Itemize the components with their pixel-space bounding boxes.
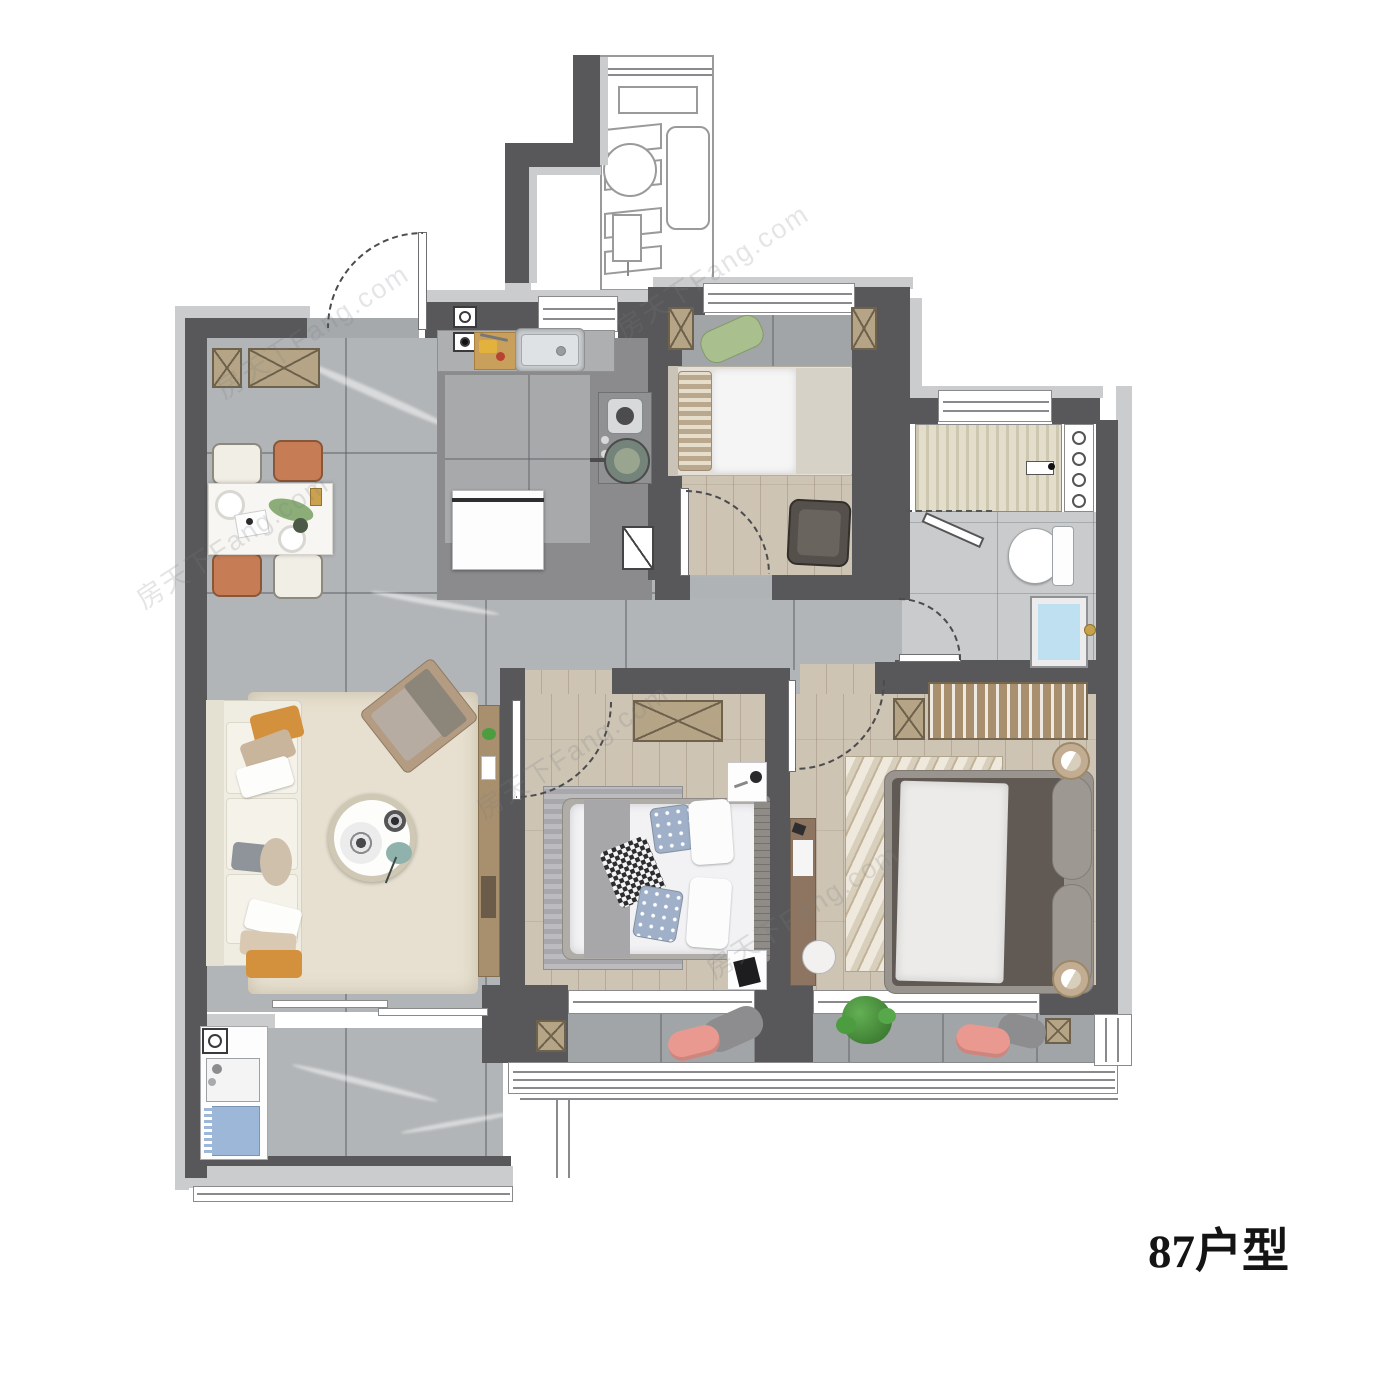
lower-floor-line <box>520 1098 1118 1100</box>
bed1-pillow <box>678 371 712 471</box>
bedroom1-door-threshold <box>690 577 772 598</box>
column <box>851 307 877 350</box>
fridge-handle <box>452 498 544 502</box>
dining-chair <box>273 553 323 599</box>
nightstand-deco <box>750 771 762 783</box>
plant-leaf <box>836 1016 856 1034</box>
decor-plate <box>340 822 382 864</box>
wall-lining <box>600 57 608 165</box>
dining-chair <box>212 443 262 485</box>
window-line <box>573 1001 752 1003</box>
wall-lining <box>1116 386 1132 1028</box>
decor-flower <box>384 810 406 832</box>
shower-door-track <box>906 510 992 512</box>
pipe-circle <box>1072 473 1086 487</box>
bathroom-window <box>938 390 1052 422</box>
nightstand <box>727 762 767 802</box>
unit-type-label: 87户型 <box>1148 1212 1348 1272</box>
window-line <box>513 1071 1115 1073</box>
nightstand-deco <box>1057 747 1084 774</box>
floor-plan-canvas: 房天下Fang.com 房天下Fang.com 房天下Fang.com 房天下F… <box>0 0 1400 1400</box>
tv-console <box>478 705 500 977</box>
symbol-box <box>453 306 477 328</box>
vent-box <box>618 86 698 114</box>
kitchen-door-leaf <box>622 526 654 570</box>
column <box>536 1020 566 1052</box>
window-line <box>513 1079 1115 1081</box>
kitchen-window <box>538 296 618 332</box>
living-sliding-door <box>378 1008 488 1016</box>
arc-curve <box>795 680 885 770</box>
food-item <box>479 340 497 353</box>
desk-chair-round <box>802 940 836 974</box>
faucet <box>1084 624 1096 636</box>
column <box>893 698 925 740</box>
wall-bedroom1-south <box>655 575 690 600</box>
desk-chair-cushion <box>797 509 841 557</box>
bedroom2-door-threshold <box>515 670 612 694</box>
wall-lining <box>529 167 537 283</box>
window-line <box>708 302 852 304</box>
sink-basin <box>521 334 579 366</box>
window-line <box>197 1193 510 1195</box>
console-plant <box>482 728 496 740</box>
window-line <box>943 401 1049 403</box>
window-line <box>708 293 852 295</box>
arc-curve <box>899 598 961 660</box>
wall-segment <box>505 143 529 283</box>
shower-head-dot <box>1048 463 1055 470</box>
nightstand-deco <box>734 781 748 789</box>
burner-center <box>616 407 634 425</box>
door-leaf-line <box>624 528 652 568</box>
decor-leaf <box>386 842 412 864</box>
bedroom2-south-window <box>568 990 755 1014</box>
plant-leaf <box>878 1008 896 1024</box>
living-sliding-door <box>272 1000 388 1008</box>
window-line <box>1117 1018 1119 1062</box>
window-line <box>943 410 1049 412</box>
throw-pillow <box>246 950 302 978</box>
equipment-box <box>612 214 642 262</box>
ac-fan-circle <box>603 143 657 197</box>
window-line <box>543 318 615 320</box>
toilet-tank <box>1052 526 1074 586</box>
bedroom1-door-arc <box>686 490 770 574</box>
wall-bath-west <box>877 400 905 512</box>
symbol-box <box>202 1028 228 1054</box>
master-runner <box>895 781 1008 984</box>
symbol-dot <box>460 337 470 347</box>
column <box>1045 1018 1071 1044</box>
round-nightstand <box>1052 742 1090 780</box>
bed2-pillow-dotted <box>632 885 684 944</box>
pipe-line <box>627 262 629 276</box>
window-line <box>543 308 615 310</box>
master-door-arc <box>795 680 885 770</box>
throw-pillow <box>260 838 292 886</box>
laundry-faucet <box>212 1064 222 1074</box>
corner-window <box>1094 1014 1132 1066</box>
lower-floor-line <box>568 1098 570 1178</box>
bed1-headboard <box>668 366 678 476</box>
sofa-back <box>206 700 224 966</box>
bedroom1-window <box>703 283 855 313</box>
laundry-drain <box>208 1078 216 1086</box>
wall-east <box>1096 420 1118 1018</box>
wall-bath-west <box>880 512 902 598</box>
symbol-circle <box>208 1034 222 1048</box>
platform-line <box>602 68 712 70</box>
round-nightstand <box>1052 960 1090 998</box>
arc-curve <box>686 490 770 574</box>
console-item <box>481 876 496 918</box>
platform-line <box>602 74 712 76</box>
pipe-circle <box>1072 494 1086 508</box>
wall-lining <box>180 306 310 318</box>
symbol-circle <box>459 311 471 323</box>
wall-bath-north <box>905 398 938 424</box>
wok-handle <box>590 458 606 462</box>
stove-knob <box>601 436 609 444</box>
fridge <box>452 490 544 570</box>
pipe-circle <box>1072 452 1086 466</box>
desk-chair <box>786 498 851 567</box>
pipe-shaft <box>1064 424 1094 512</box>
wall-lining <box>185 1166 513 1188</box>
desk-pad <box>793 840 813 876</box>
wall-bath-north <box>1052 398 1100 424</box>
food-item <box>496 352 505 361</box>
pipe-circle <box>1072 431 1086 445</box>
bed2-pillow <box>688 799 734 866</box>
wall-lining <box>529 167 601 175</box>
nightstand-deco <box>1057 965 1084 992</box>
towel-stack <box>204 1106 260 1156</box>
window-line <box>513 1087 1115 1089</box>
wall-south-pier <box>755 985 813 1063</box>
balcony-rail <box>193 1186 513 1202</box>
bathroom-door-arc <box>899 598 961 660</box>
wardrobe <box>928 682 1088 740</box>
sink-drain <box>556 346 566 356</box>
bath-sink <box>1038 604 1080 660</box>
bed1-duvet <box>712 369 796 473</box>
master-pillow <box>1052 776 1092 880</box>
south-window-band <box>508 1062 1118 1094</box>
window-line <box>1105 1018 1107 1062</box>
wall-lining <box>910 298 922 400</box>
bed1-blanket <box>796 368 852 474</box>
platform-door-leaf <box>666 126 710 230</box>
lower-floor-line <box>556 1098 558 1178</box>
towel-fringe <box>204 1106 212 1156</box>
wok-inner <box>614 448 640 474</box>
